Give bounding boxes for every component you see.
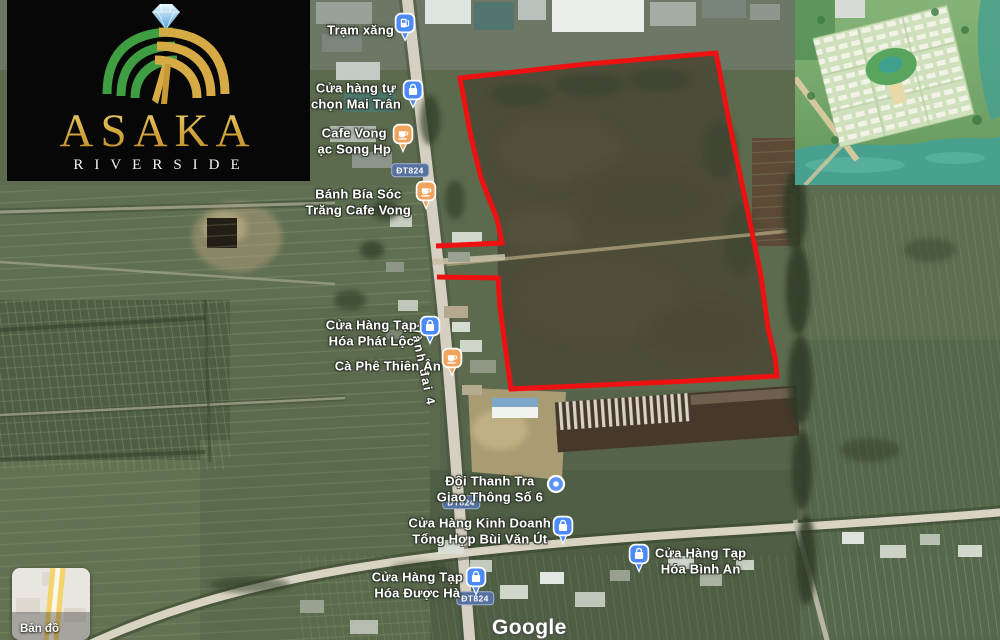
thien-an-label[interactable]: Cà Phê Thiên Ân — [335, 358, 441, 374]
duoc-ha-label[interactable]: Cửa Hàng TạpHóa Được Hà — [372, 570, 463, 601]
map-type-toggle[interactable]: Bản đồ — [12, 568, 90, 640]
banh-bia-label[interactable]: Bánh Bía SócTrăng Cafe Vong — [306, 187, 411, 218]
logo-tagline-text: RIVERSIDE — [73, 157, 250, 173]
arcs-emblem — [107, 32, 225, 104]
asaka-logo-art: ASAKA RIVERSIDE — [7, 0, 310, 181]
tram-xang-pin[interactable] — [394, 12, 416, 47]
google-maps-satellite-view: Vành đai 4 ĐT824ĐT824ĐT824 Trạm xăng Cửa… — [0, 0, 1000, 640]
asaka-logo-panel: ASAKA RIVERSIDE — [7, 0, 310, 181]
route-badge-dt824: ĐT824 — [391, 163, 429, 177]
duoc-ha-pin[interactable] — [465, 566, 487, 601]
map-type-label: Bản đồ — [20, 623, 59, 635]
phat-loc-label[interactable]: Cửa Hàng TạpHóa Phát Lộc — [326, 318, 417, 349]
doi-thanh-tra-pin[interactable] — [545, 473, 567, 500]
logo-brand-text: ASAKA — [60, 105, 257, 157]
mai-tran-label[interactable]: Cửa hàng tựchọn Mai Trân — [311, 81, 401, 112]
phat-loc-pin[interactable] — [419, 315, 441, 350]
bui-van-ut-pin[interactable] — [552, 515, 574, 550]
banh-bia-pin[interactable] — [415, 180, 437, 215]
tram-xang-label[interactable]: Trạm xăng — [327, 22, 394, 38]
thien-an-pin[interactable] — [441, 347, 463, 382]
bui-van-ut-label[interactable]: Cửa Hàng Kinh DoanhTổng Hợp Bùi Văn Út — [409, 516, 552, 547]
binh-an-pin[interactable] — [628, 543, 650, 578]
cafe-vong-pin[interactable] — [392, 123, 414, 158]
mai-tran-pin[interactable] — [402, 79, 424, 114]
google-logo[interactable]: Google — [492, 616, 567, 640]
cafe-vong-label[interactable]: Cafe Vongạc Song Hp — [317, 126, 391, 157]
doi-thanh-tra-label[interactable]: Đội Thanh TraGiao Thông Số 6 — [437, 474, 543, 505]
masterplan-inset-image — [795, 0, 1000, 185]
diamond-icon — [152, 4, 180, 30]
binh-an-label[interactable]: Cửa Hàng TạpHóa Bình An — [655, 546, 746, 577]
